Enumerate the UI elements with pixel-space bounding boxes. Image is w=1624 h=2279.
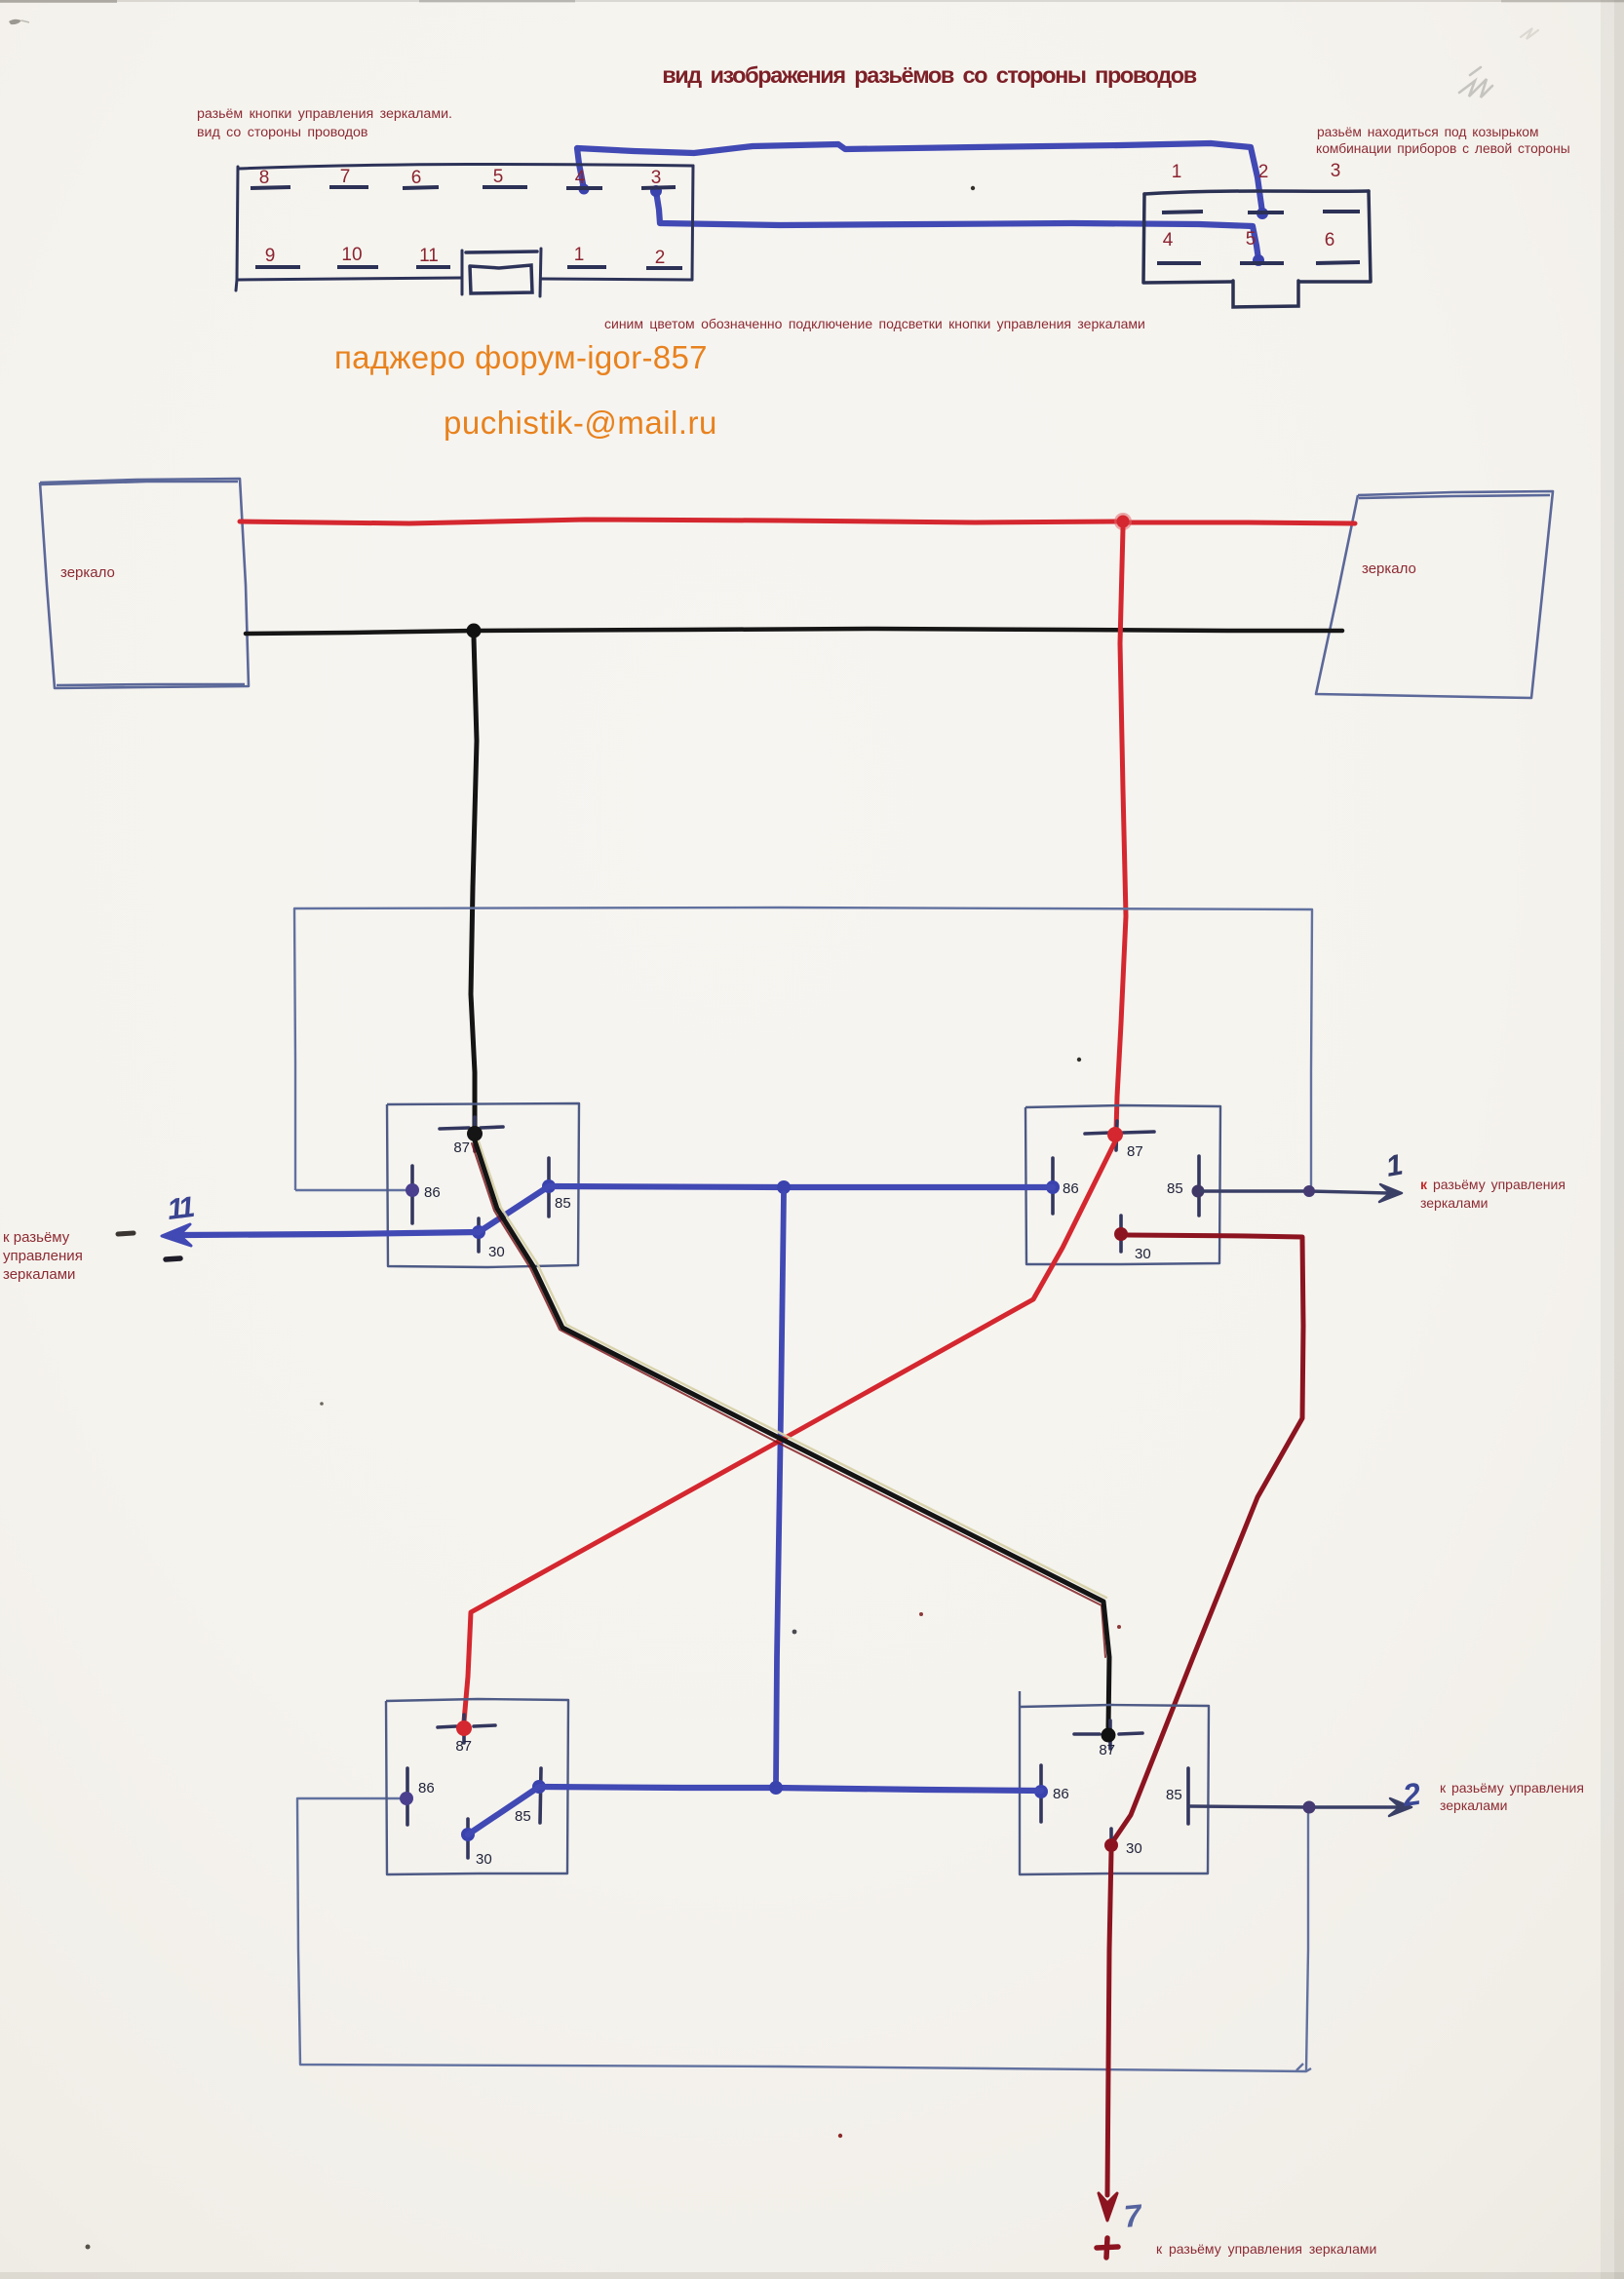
svg-text:6: 6 — [411, 168, 422, 188]
svg-text:к: к — [1420, 1177, 1428, 1192]
svg-text:5: 5 — [493, 167, 504, 187]
svg-text:зеркало: зеркало — [1362, 560, 1416, 577]
svg-text:86: 86 — [1063, 1180, 1079, 1197]
svg-text:30: 30 — [1135, 1246, 1151, 1262]
svg-text:10: 10 — [341, 245, 362, 265]
svg-text:к разьёму: к разьёму — [3, 1229, 70, 1246]
svg-text:2: 2 — [1258, 162, 1269, 182]
svg-text:2: 2 — [655, 248, 666, 268]
svg-text:вид со стороны проводов: вид со стороны проводов — [197, 125, 367, 140]
svg-text:30: 30 — [476, 1851, 492, 1868]
svg-text:85: 85 — [555, 1195, 571, 1212]
svg-text:к разьёму управления: к разьёму управления — [1440, 1780, 1584, 1796]
svg-text:зеркалами: зеркалами — [1420, 1195, 1488, 1211]
svg-text:зеркалами: зеркалами — [1440, 1797, 1507, 1813]
svg-text:вид изображения разьёмов со ст: вид изображения разьёмов со стороны пров… — [662, 62, 1197, 88]
svg-text:9: 9 — [265, 246, 276, 266]
svg-text:85: 85 — [515, 1808, 531, 1825]
svg-text:7: 7 — [340, 167, 351, 187]
svg-text:зеркало: зеркало — [60, 564, 115, 581]
svg-text:87: 87 — [455, 1738, 472, 1755]
svg-text:комбинации приборов с левой ст: комбинации приборов с левой стороны — [1316, 141, 1570, 156]
svg-text:85: 85 — [1166, 1787, 1182, 1803]
svg-text:4: 4 — [575, 168, 586, 188]
svg-text:87: 87 — [1099, 1742, 1115, 1758]
svg-text:3: 3 — [651, 168, 662, 188]
svg-text:30: 30 — [488, 1244, 505, 1260]
svg-text:85: 85 — [1167, 1180, 1183, 1197]
svg-text:6: 6 — [1325, 230, 1335, 251]
svg-text:87: 87 — [453, 1139, 470, 1156]
svg-text:86: 86 — [424, 1184, 441, 1201]
svg-text:к разьёму управления зеркала: к разьёму управления зеркалами — [1156, 2241, 1376, 2257]
svg-text:1: 1 — [1172, 162, 1182, 182]
svg-text:разьём кнопки управления зерка: разьём кнопки управления зеркалами. — [197, 106, 452, 122]
svg-text:синим цветом обозначенно подкл: синим цветом обозначенно подключение под… — [604, 316, 1145, 331]
svg-text:87: 87 — [1127, 1143, 1143, 1160]
svg-text:86: 86 — [418, 1780, 435, 1796]
svg-text:86: 86 — [1053, 1786, 1069, 1802]
svg-text:разьёму управления: разьёму управления — [1433, 1177, 1566, 1192]
svg-text:паджеро форум-igor-857: паджеро форум-igor-857 — [334, 339, 708, 375]
svg-text:3: 3 — [1331, 161, 1341, 181]
svg-text:зеркалами: зеркалами — [3, 1266, 75, 1283]
svg-text:управления: управления — [3, 1248, 83, 1264]
svg-text:4: 4 — [1163, 230, 1174, 251]
svg-text:разьём находиться под козырько: разьём находиться под козырьком — [1317, 125, 1538, 139]
svg-text:puchistik-@mail.ru: puchistik-@mail.ru — [444, 405, 717, 441]
svg-text:1: 1 — [574, 245, 585, 265]
svg-text:5: 5 — [1246, 229, 1257, 250]
svg-text:11: 11 — [419, 246, 439, 266]
svg-text:8: 8 — [259, 168, 270, 188]
svg-text:30: 30 — [1126, 1840, 1142, 1857]
